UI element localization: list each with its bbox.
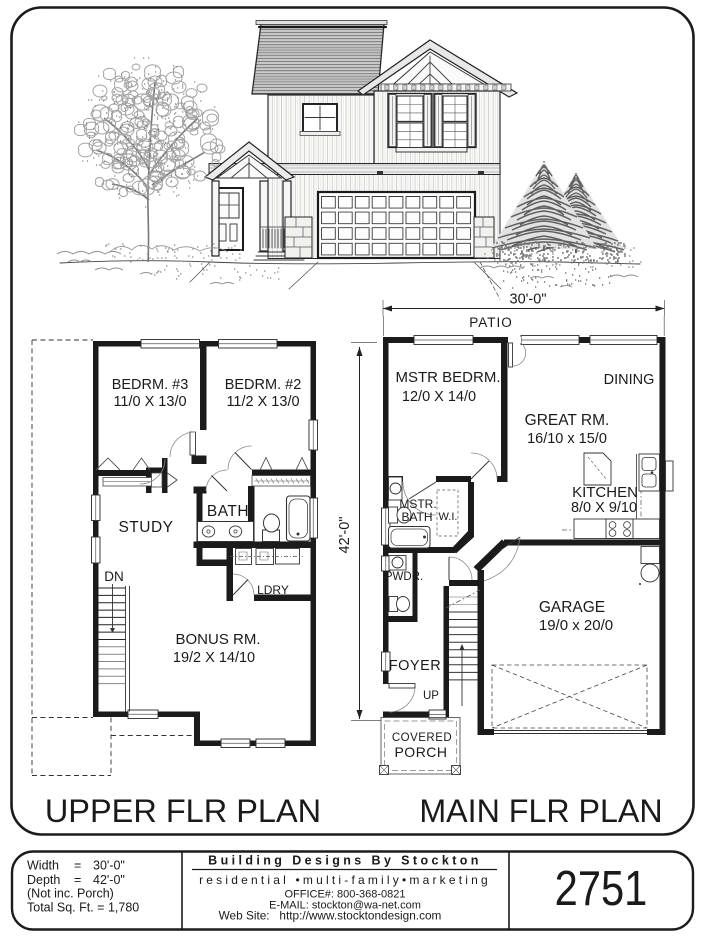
svg-text:STUDY: STUDY — [118, 519, 173, 536]
svg-text:=: = — [74, 859, 81, 873]
svg-text:BEDRM. #2: BEDRM. #2 — [225, 377, 302, 393]
svg-text:COVERED: COVERED — [392, 732, 452, 744]
svg-text:UP: UP — [423, 690, 439, 702]
svg-text:BATH: BATH — [401, 510, 432, 524]
svg-text:42'-0": 42'-0" — [93, 873, 125, 887]
svg-text:Total Sq. Ft. = 1,780: Total Sq. Ft. = 1,780 — [27, 901, 139, 915]
svg-text:BATH: BATH — [207, 503, 249, 520]
svg-text:Web Site: http://www.stockto: Web Site: http://www.stocktondesign.com — [219, 909, 442, 923]
svg-text:16/10 x 15/0: 16/10 x 15/0 — [527, 431, 607, 447]
svg-text:19/0 x 20/0: 19/0 x 20/0 — [539, 617, 613, 634]
svg-text:BONUS RM.: BONUS RM. — [175, 631, 260, 648]
svg-text:residential •multi-family•mark: residential •multi-family•marketing — [199, 873, 491, 887]
svg-text:11/0 X 13/0: 11/0 X 13/0 — [113, 394, 186, 410]
svg-text:UPPER FLR PLAN: UPPER FLR PLAN — [45, 793, 321, 829]
svg-text:GARAGE: GARAGE — [539, 599, 605, 616]
svg-text:PATIO: PATIO — [469, 315, 513, 330]
svg-text:12/0 X 14/0: 12/0 X 14/0 — [402, 389, 476, 405]
svg-text:MSTR BEDRM.: MSTR BEDRM. — [396, 369, 501, 386]
svg-text:Depth: Depth — [27, 873, 60, 887]
svg-text:W.I.: W.I. — [439, 511, 458, 523]
svg-text:30'-0": 30'-0" — [93, 859, 125, 873]
svg-text:8/0 X 9/10: 8/0 X 9/10 — [571, 500, 637, 516]
svg-text:DN: DN — [104, 569, 124, 584]
svg-text:GREAT RM.: GREAT RM. — [525, 412, 610, 429]
svg-text:=: = — [74, 873, 81, 887]
svg-text:BEDRM. #3: BEDRM. #3 — [112, 377, 189, 393]
svg-text:19/2 X 14/10: 19/2 X 14/10 — [173, 650, 255, 666]
svg-text:FOYER: FOYER — [389, 658, 441, 674]
svg-text:LDRY: LDRY — [257, 583, 289, 597]
svg-text:42'-0": 42'-0" — [337, 517, 353, 554]
svg-text:MAIN FLR PLAN: MAIN FLR PLAN — [419, 793, 662, 829]
svg-text:30'-0": 30'-0" — [510, 292, 547, 308]
svg-text:PORCH: PORCH — [394, 744, 447, 760]
svg-text:MSTR.: MSTR. — [399, 497, 436, 511]
svg-text:Building Designs By Stockton: Building Designs By Stockton — [208, 854, 482, 868]
svg-text:2751: 2751 — [555, 861, 648, 916]
svg-text:Width: Width — [27, 859, 59, 873]
svg-text:KITCHEN: KITCHEN — [572, 484, 638, 501]
svg-text:(Not inc. Porch): (Not inc. Porch) — [27, 887, 114, 901]
svg-text:11/2 X 13/0: 11/2 X 13/0 — [226, 394, 299, 410]
svg-text:DINING: DINING — [604, 372, 655, 388]
svg-text:PWDR.: PWDR. — [385, 571, 423, 583]
